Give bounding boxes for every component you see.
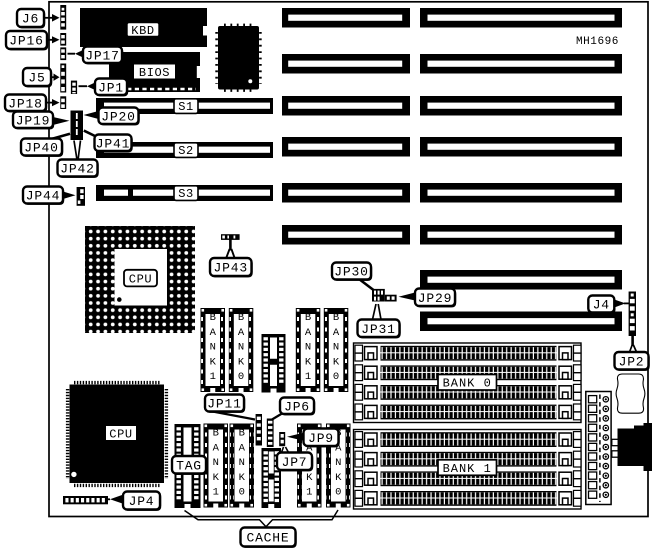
svg-text:N: N: [238, 342, 244, 354]
svg-text:JP42: JP42: [60, 162, 94, 177]
svg-text:J6: J6: [22, 12, 39, 27]
svg-text:S2: S2: [178, 144, 194, 158]
svg-text:JP29: JP29: [418, 291, 452, 306]
svg-text:JP41: JP41: [96, 136, 130, 151]
svg-text:1: 1: [210, 371, 216, 383]
svg-text:1: 1: [305, 371, 311, 383]
svg-text:B: B: [305, 312, 311, 324]
svg-text:JP1: JP1: [98, 80, 124, 95]
svg-text:K: K: [239, 472, 246, 484]
svg-text:B: B: [213, 428, 219, 440]
svg-text:JP6: JP6: [284, 399, 310, 414]
svg-text:N: N: [335, 457, 341, 469]
svg-text:N: N: [305, 342, 311, 354]
svg-text:BIOS: BIOS: [139, 66, 170, 80]
svg-text:JP44: JP44: [26, 189, 60, 204]
svg-text:K: K: [213, 472, 220, 484]
svg-text:A: A: [238, 327, 245, 339]
svg-text:JP4: JP4: [129, 494, 155, 509]
svg-text:N: N: [213, 457, 219, 469]
svg-text:A: A: [213, 442, 220, 454]
svg-text:1: 1: [213, 487, 219, 499]
svg-text:TAG: TAG: [176, 458, 202, 473]
svg-text:B: B: [333, 312, 339, 324]
svg-text:0: 0: [335, 487, 341, 499]
svg-text:K: K: [305, 356, 312, 368]
svg-text:S1: S1: [178, 100, 194, 114]
svg-text:CPU: CPU: [109, 427, 132, 441]
svg-text:JP31: JP31: [361, 322, 395, 337]
svg-text:S3: S3: [178, 187, 194, 201]
svg-text:A: A: [210, 327, 217, 339]
svg-text:N: N: [333, 342, 339, 354]
svg-text:JP2: JP2: [619, 354, 645, 369]
svg-text:J4: J4: [593, 298, 610, 313]
svg-text:JP7: JP7: [282, 455, 308, 470]
svg-text:K: K: [238, 356, 245, 368]
svg-text:N: N: [210, 342, 216, 354]
svg-text:CPU: CPU: [129, 273, 152, 287]
svg-text:KBD: KBD: [131, 24, 154, 38]
svg-text:JP18: JP18: [8, 96, 42, 111]
svg-text:0: 0: [333, 371, 339, 383]
svg-text:J5: J5: [28, 71, 45, 86]
svg-text:K: K: [306, 472, 313, 484]
svg-text:JP9: JP9: [308, 431, 334, 446]
svg-text:JP20: JP20: [101, 109, 135, 124]
svg-text:K: K: [335, 472, 342, 484]
svg-text:JP40: JP40: [24, 141, 58, 156]
svg-text:JP11: JP11: [207, 397, 241, 412]
svg-text:A: A: [305, 327, 312, 339]
svg-text:CACHE: CACHE: [246, 531, 289, 546]
svg-text:N: N: [239, 457, 245, 469]
svg-text:BANK 0: BANK 0: [443, 377, 492, 391]
svg-text:JP16: JP16: [9, 34, 43, 49]
svg-text:JP43: JP43: [214, 261, 248, 276]
svg-text:B: B: [239, 428, 245, 440]
svg-text:A: A: [239, 442, 246, 454]
svg-text:JP30: JP30: [334, 265, 368, 280]
svg-text:0: 0: [239, 487, 245, 499]
svg-text:MH1696: MH1696: [576, 36, 619, 48]
svg-text:JP17: JP17: [85, 48, 119, 63]
svg-text:JP19: JP19: [16, 113, 50, 128]
svg-text:B: B: [210, 312, 216, 324]
svg-text:K: K: [333, 356, 340, 368]
svg-text:A: A: [333, 327, 340, 339]
svg-text:BANK 1: BANK 1: [443, 462, 492, 476]
svg-text:K: K: [210, 356, 217, 368]
svg-text:1: 1: [306, 487, 312, 499]
svg-text:0: 0: [238, 371, 244, 383]
svg-text:B: B: [238, 312, 244, 324]
